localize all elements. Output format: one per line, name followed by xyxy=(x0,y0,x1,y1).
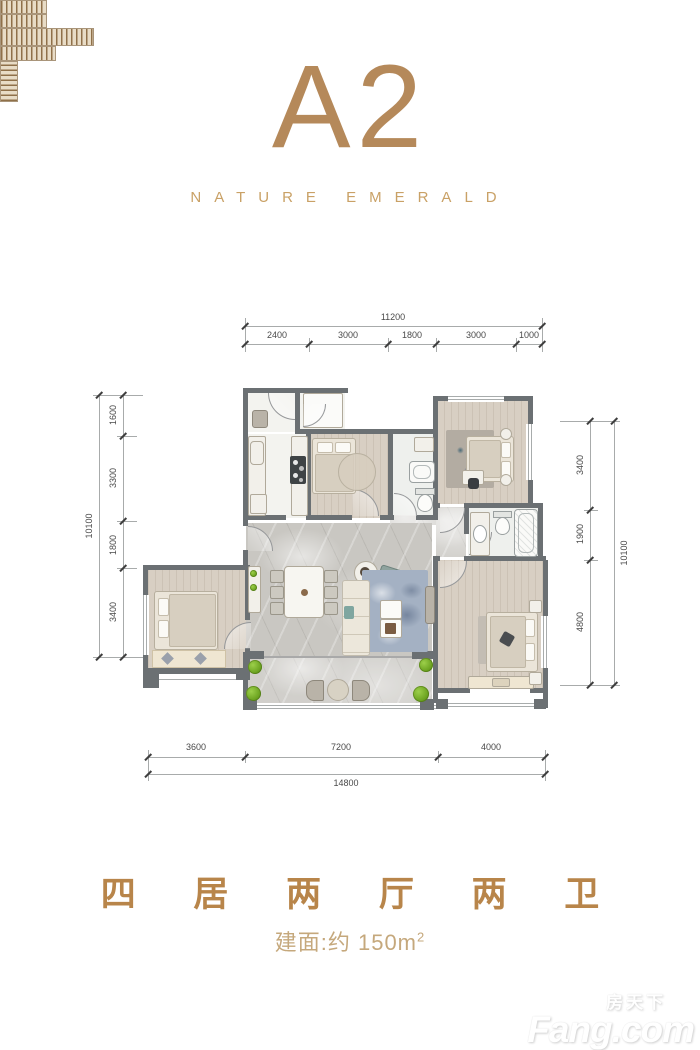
wall-segment xyxy=(534,699,546,709)
bed xyxy=(486,612,538,672)
nightstand xyxy=(500,474,512,486)
wall-segment xyxy=(433,560,438,708)
desk-chair xyxy=(468,478,479,489)
pillow xyxy=(501,442,511,458)
chair xyxy=(270,570,284,583)
sink xyxy=(473,525,487,543)
wardrobe xyxy=(0,28,94,46)
window xyxy=(159,677,236,682)
dim-line xyxy=(99,395,100,657)
wall-segment xyxy=(295,429,438,434)
wall-segment xyxy=(433,396,438,515)
nightstand xyxy=(500,428,512,440)
dim-line xyxy=(148,757,545,758)
shape xyxy=(301,589,308,596)
wall-segment xyxy=(538,503,543,561)
coffee-table xyxy=(380,619,402,638)
window xyxy=(448,394,504,402)
plant xyxy=(413,686,429,702)
shape xyxy=(293,473,298,478)
dim-label: 1600 xyxy=(108,405,118,425)
coffee-table xyxy=(380,600,402,619)
wall-segment xyxy=(528,396,533,424)
pillow xyxy=(335,442,351,453)
wall-segment xyxy=(464,508,469,534)
shape xyxy=(385,623,396,634)
wall-segment xyxy=(246,651,264,659)
unit-subtitle: NATURE EMERALD xyxy=(0,189,700,206)
wall-segment xyxy=(380,515,394,520)
dim-line xyxy=(309,338,310,352)
chair xyxy=(270,586,284,599)
balcony-chair xyxy=(306,680,324,701)
window xyxy=(541,616,549,668)
shape xyxy=(299,466,304,471)
entry-mat xyxy=(252,410,268,428)
bathtub xyxy=(409,461,435,483)
wall-segment xyxy=(308,515,352,520)
chair xyxy=(270,602,284,615)
dim-label: 4000 xyxy=(481,742,501,752)
wall-segment xyxy=(295,390,300,431)
dim-line xyxy=(436,338,437,352)
plant xyxy=(250,570,257,577)
pillow xyxy=(317,442,333,453)
wall-segment xyxy=(433,396,448,401)
balcony-glass xyxy=(248,703,436,709)
bed xyxy=(154,591,218,650)
shape xyxy=(299,478,303,482)
dim-left-total: 10100 xyxy=(84,513,94,538)
dim-line xyxy=(388,338,389,352)
furn xyxy=(492,678,510,687)
kitchen-sink xyxy=(250,441,264,465)
pillow xyxy=(158,598,169,616)
wall-segment xyxy=(436,688,470,693)
dim-label: 3300 xyxy=(108,468,118,488)
wall-segment xyxy=(143,668,250,674)
dim-label: 1000 xyxy=(519,330,539,340)
plant xyxy=(246,686,261,701)
dim-label: 3600 xyxy=(186,742,206,752)
dim-line xyxy=(93,657,143,658)
tubin xyxy=(518,513,534,553)
dim-top-total: 11200 xyxy=(381,312,405,322)
dim-label: 3000 xyxy=(466,330,486,340)
dim-label: 1900 xyxy=(575,524,585,544)
pillow xyxy=(525,643,535,661)
chair xyxy=(324,602,338,615)
wardrobe xyxy=(0,14,47,28)
layout-title: 四 居 两 厅 两 卫 xyxy=(0,866,700,917)
plant xyxy=(419,658,433,672)
tv-console xyxy=(425,586,435,624)
chair xyxy=(324,586,338,599)
dim-right-total: 10100 xyxy=(619,540,629,565)
wall-segment xyxy=(143,668,159,688)
dining-table xyxy=(284,566,324,618)
sofa-cushion xyxy=(344,606,354,619)
balcony-glass xyxy=(438,701,544,707)
dim-label: 3400 xyxy=(575,455,585,475)
dim-line xyxy=(245,326,542,327)
dim-label: 3000 xyxy=(338,330,358,340)
dim-line xyxy=(93,395,143,396)
wall-segment xyxy=(143,565,250,570)
wall-segment xyxy=(143,565,148,595)
plant xyxy=(250,584,257,591)
tubin xyxy=(413,465,431,479)
bath-sink xyxy=(414,437,434,452)
blanket xyxy=(169,594,216,647)
pillow xyxy=(525,619,535,637)
fridge xyxy=(250,494,267,514)
window xyxy=(141,595,149,655)
unit-title: A2 xyxy=(0,48,700,166)
fang-en-logo: Fang.com xyxy=(527,1013,694,1046)
dim-label: 4800 xyxy=(575,612,585,632)
bathtub xyxy=(514,509,538,557)
plant xyxy=(248,660,262,674)
dim-line xyxy=(590,421,591,685)
dim-line xyxy=(148,774,545,775)
floorplan-page: A2 NATURE EMERALD 11200 2400 3000 1800 3… xyxy=(0,0,700,1050)
dim-line xyxy=(614,421,615,685)
dim-label: 7200 xyxy=(331,742,351,752)
dim-bottom-total: 14800 xyxy=(333,778,358,788)
fang-watermark: 房天下 Fang.com xyxy=(527,988,694,1046)
wall-segment xyxy=(464,503,543,508)
dim-label: 1800 xyxy=(108,535,118,555)
balcony-chair xyxy=(352,680,370,701)
dim-line xyxy=(584,560,598,561)
chair xyxy=(324,570,338,583)
wall-segment xyxy=(388,434,393,515)
toiletbowl xyxy=(495,517,510,535)
sliding-door xyxy=(264,656,412,658)
nightstand xyxy=(529,672,542,685)
toiletbowl xyxy=(417,494,433,512)
dim-line xyxy=(516,338,517,352)
area-text: 建面:约 150m2 xyxy=(0,925,700,957)
dim-label: 3400 xyxy=(108,602,118,622)
dim-label: 1800 xyxy=(402,330,422,340)
round-rug xyxy=(338,453,376,491)
dim-line xyxy=(245,344,542,345)
wall-segment xyxy=(433,503,440,508)
wall-segment xyxy=(543,560,548,616)
pillow xyxy=(158,620,169,638)
balcony-table xyxy=(327,679,349,701)
window xyxy=(526,424,534,480)
dim-line xyxy=(584,510,598,511)
nightstand xyxy=(529,600,542,613)
wall-segment xyxy=(436,699,448,709)
shape xyxy=(293,460,298,465)
wall-segment xyxy=(416,515,438,520)
wardrobe xyxy=(0,0,47,14)
dim-label: 2400 xyxy=(267,330,287,340)
stove xyxy=(290,456,306,484)
